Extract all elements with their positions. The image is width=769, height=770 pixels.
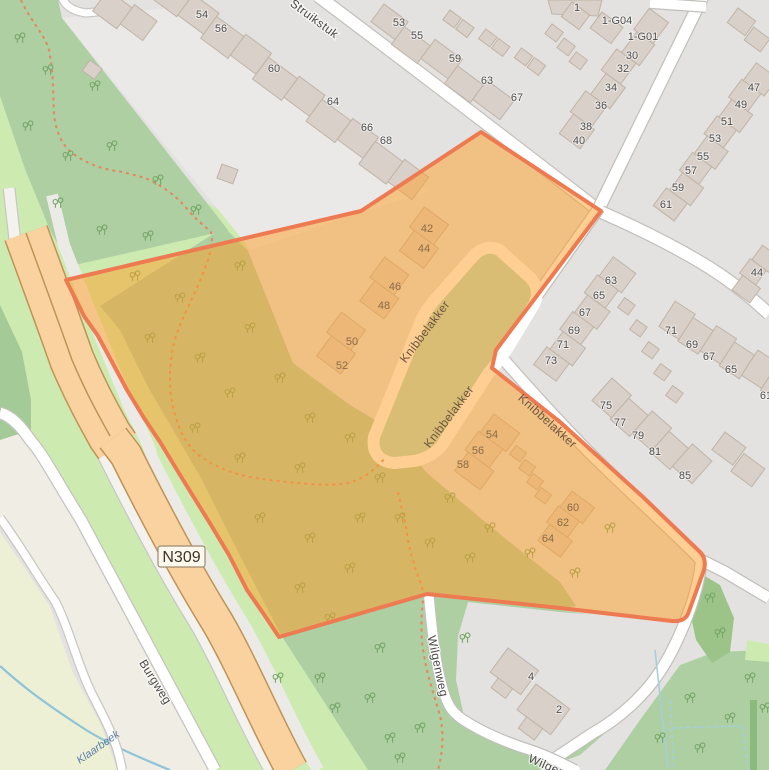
svg-text:1-G01: 1-G01 bbox=[628, 31, 659, 43]
svg-text:67: 67 bbox=[579, 307, 591, 319]
svg-text:40: 40 bbox=[573, 135, 585, 147]
svg-text:63: 63 bbox=[481, 75, 493, 87]
svg-text:69: 69 bbox=[686, 339, 698, 351]
svg-text:56: 56 bbox=[215, 23, 227, 35]
svg-text:65: 65 bbox=[725, 364, 737, 376]
svg-text:2: 2 bbox=[556, 704, 562, 716]
svg-text:68: 68 bbox=[380, 135, 392, 147]
svg-text:81: 81 bbox=[649, 446, 661, 458]
svg-text:54: 54 bbox=[486, 429, 498, 441]
svg-text:N309: N309 bbox=[162, 549, 200, 566]
svg-text:64: 64 bbox=[327, 96, 339, 108]
svg-text:4: 4 bbox=[528, 671, 534, 683]
svg-text:56: 56 bbox=[472, 445, 484, 457]
svg-text:55: 55 bbox=[697, 151, 709, 163]
svg-text:34: 34 bbox=[605, 82, 617, 94]
svg-text:1-G04: 1-G04 bbox=[602, 15, 633, 27]
svg-text:44: 44 bbox=[751, 267, 763, 279]
svg-text:85: 85 bbox=[679, 470, 691, 482]
svg-text:69: 69 bbox=[568, 325, 580, 337]
svg-text:62: 62 bbox=[557, 517, 569, 529]
svg-text:65: 65 bbox=[593, 290, 605, 302]
svg-text:54: 54 bbox=[196, 9, 208, 21]
svg-text:38: 38 bbox=[580, 121, 592, 133]
svg-text:42: 42 bbox=[421, 223, 433, 235]
svg-text:60: 60 bbox=[268, 63, 280, 75]
svg-text:58: 58 bbox=[457, 459, 469, 471]
svg-text:44: 44 bbox=[418, 243, 430, 255]
svg-text:32: 32 bbox=[617, 63, 629, 75]
svg-text:46: 46 bbox=[389, 281, 401, 293]
svg-text:57: 57 bbox=[685, 165, 697, 177]
svg-text:30: 30 bbox=[626, 50, 638, 62]
svg-text:50: 50 bbox=[346, 336, 358, 348]
svg-text:67: 67 bbox=[511, 92, 523, 104]
svg-text:66: 66 bbox=[361, 122, 373, 134]
svg-text:61: 61 bbox=[660, 199, 672, 211]
svg-text:63: 63 bbox=[605, 275, 617, 287]
svg-text:51: 51 bbox=[721, 116, 733, 128]
svg-text:79: 79 bbox=[632, 430, 644, 442]
svg-text:36: 36 bbox=[595, 100, 607, 112]
svg-text:61: 61 bbox=[760, 390, 769, 402]
svg-text:71: 71 bbox=[557, 339, 569, 351]
svg-text:52: 52 bbox=[336, 360, 348, 372]
svg-text:73: 73 bbox=[545, 355, 557, 367]
svg-text:48: 48 bbox=[378, 300, 390, 312]
svg-text:47: 47 bbox=[748, 82, 760, 94]
svg-text:60: 60 bbox=[567, 502, 579, 514]
svg-text:64: 64 bbox=[542, 533, 554, 545]
svg-text:53: 53 bbox=[393, 17, 405, 29]
svg-text:59: 59 bbox=[449, 53, 461, 65]
svg-text:53: 53 bbox=[709, 133, 721, 145]
svg-text:59: 59 bbox=[672, 182, 684, 194]
svg-text:75: 75 bbox=[600, 400, 612, 412]
svg-text:71: 71 bbox=[665, 325, 677, 337]
svg-text:49: 49 bbox=[735, 99, 747, 111]
svg-text:67: 67 bbox=[703, 351, 715, 363]
svg-text:77: 77 bbox=[614, 417, 626, 429]
svg-text:1: 1 bbox=[574, 2, 580, 14]
svg-text:55: 55 bbox=[411, 30, 423, 42]
